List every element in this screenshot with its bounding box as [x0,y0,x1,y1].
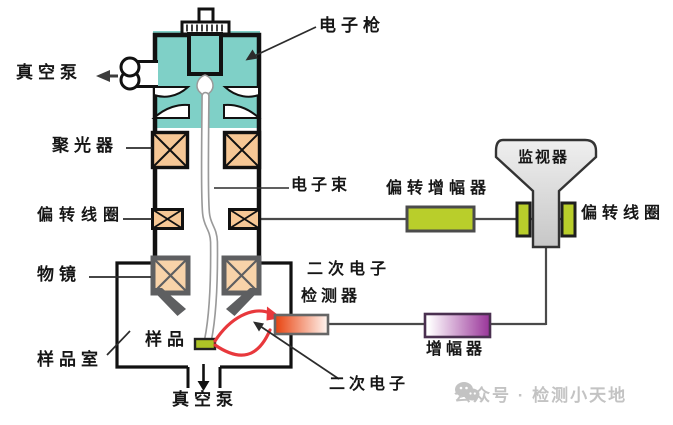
objective-lens-right [224,258,262,316]
sem-schematic-diagram: 电子枪 真空泵 聚光器 电子束 偏转线圈 偏转增幅器 监视器 偏转线圈 物镜 二… [0,0,673,425]
deflection-coil-right-box [230,210,260,229]
label-secondary-electron: 二次电子 [329,376,409,394]
label-deflection-amplifier: 偏转增幅器 [386,180,491,198]
label-vacuum-pump-top: 真空泵 [16,64,82,83]
vacuum-port-pipe [121,58,158,89]
secondary-electron-arrowhead [253,322,264,332]
label-deflection-coil-right: 偏转线圈 [581,205,665,223]
label-condenser: 聚光器 [52,137,118,156]
label-objective-lens: 物镜 [37,266,81,285]
label-monitor: 监视器 [518,150,569,167]
label-electron-gun: 电子枪 [319,17,385,36]
crt-coil-left [517,203,530,236]
label-amplifier: 增幅器 [426,341,486,359]
vacuum-arrow-down [198,364,210,391]
amplifier-box [425,314,490,337]
secondary-electron-arc [215,307,282,356]
deflection-coil-left-box [153,210,183,229]
sample-stub [195,339,215,349]
deflection-amplifier-box [407,207,474,231]
label-deflection-coil-left: 偏转线圈 [37,207,125,225]
wechat-icon [454,381,480,403]
se-detector-box [275,315,328,334]
condenser-coil-left [153,133,188,168]
electron-beam-path [205,96,214,340]
label-sample: 样品 [145,331,189,350]
label-electron-beam: 电子束 [291,177,351,195]
label-sample-chamber: 样品室 [37,351,103,370]
objective-lens-left [151,258,189,316]
crt-coil-right [562,203,575,236]
vacuum-arrow-left [96,70,118,82]
watermark: 公众号 · 检测小天地 [454,381,627,406]
label-se-detector-line1: 二次电子 [307,261,391,279]
condenser-coil-right [225,133,260,168]
label-vacuum-pump-bottom: 真空泵 [172,391,238,410]
label-se-detector-line2: 检测器 [301,288,361,306]
